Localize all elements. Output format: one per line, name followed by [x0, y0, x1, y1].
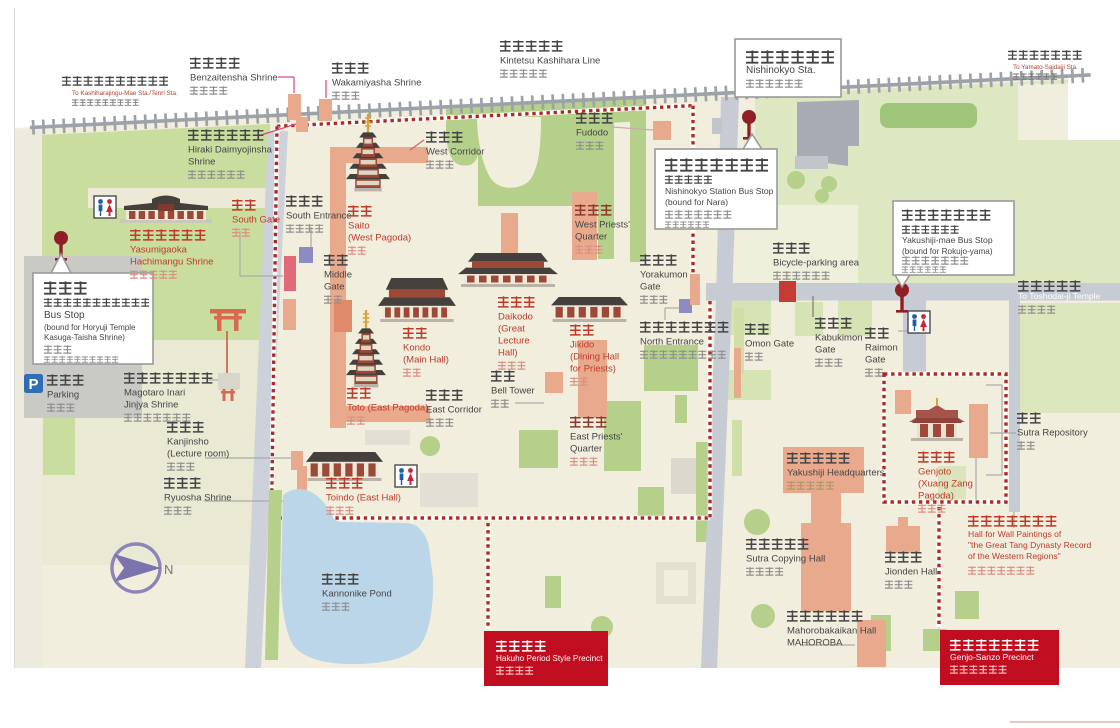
svg-text:Toto (East Pagoda): Toto (East Pagoda)	[347, 403, 428, 414]
svg-text:Magotaro Inari: Magotaro Inari	[124, 388, 185, 399]
svg-text:Kabukimon: Kabukimon	[815, 333, 863, 344]
svg-text:Quarter: Quarter	[570, 444, 602, 455]
svg-text:Hachimangu Shrine: Hachimangu Shrine	[130, 257, 213, 268]
svg-text:N: N	[164, 562, 173, 577]
svg-text:East Corridor: East Corridor	[426, 405, 482, 416]
svg-text:Daikodo: Daikodo	[498, 312, 533, 323]
svg-text:Hall for Wall Paintings of: Hall for Wall Paintings of	[968, 529, 1062, 539]
svg-text:Kanjinsho: Kanjinsho	[167, 437, 209, 448]
svg-text:(Main Hall): (Main Hall)	[403, 355, 449, 366]
svg-text:Wakamiyasha Shrine: Wakamiyasha Shrine	[332, 78, 421, 89]
svg-text:Jionden Hall: Jionden Hall	[885, 567, 937, 578]
svg-text:West Corridor: West Corridor	[426, 147, 484, 158]
svg-text:Toindo (East Hall): Toindo (East Hall)	[326, 493, 401, 504]
svg-text:Yakushiji Headquarters: Yakushiji Headquarters	[787, 468, 885, 479]
svg-text:Jikido: Jikido	[570, 340, 594, 351]
svg-text:Gate: Gate	[640, 282, 661, 293]
svg-text:of the Western Regions": of the Western Regions"	[968, 551, 1061, 561]
svg-text:Middle: Middle	[324, 270, 352, 281]
svg-text:(bound for Rokujo-yama): (bound for Rokujo-yama)	[902, 247, 993, 256]
svg-text:(Lecture room): (Lecture room)	[167, 449, 229, 460]
svg-text:Kasuga-Taisha Shrine): Kasuga-Taisha Shrine)	[44, 333, 125, 342]
svg-text:MAHOROBA: MAHOROBA	[787, 638, 843, 649]
svg-text:(Great: (Great	[498, 324, 525, 335]
svg-text:Nishinokyo Sta.: Nishinokyo Sta.	[746, 65, 815, 76]
svg-text:(bound for Horyuji Temple: (bound for Horyuji Temple	[44, 323, 136, 332]
svg-text:Saito: Saito	[348, 221, 370, 232]
svg-text:Yasumigaoka: Yasumigaoka	[130, 245, 188, 256]
svg-text:Bell Tower: Bell Tower	[491, 386, 535, 397]
svg-text:(Dining Hall: (Dining Hall	[570, 352, 619, 363]
svg-text:Gate: Gate	[324, 282, 345, 293]
svg-text:(Xuang Zang: (Xuang Zang	[918, 479, 973, 490]
svg-text:West Priests': West Priests'	[575, 220, 630, 231]
svg-text:Kondo: Kondo	[403, 343, 430, 354]
svg-text:To Kashiharajingu-Mae Sta./Ten: To Kashiharajingu-Mae Sta./Tenri Sta.	[72, 90, 178, 97]
svg-text:Fudodo: Fudodo	[576, 128, 608, 139]
svg-text:Hall): Hall)	[498, 348, 518, 359]
svg-text:Nishinokyo Station Bus Stop: Nishinokyo Station Bus Stop	[665, 186, 774, 196]
svg-text:Benzaitensha Shrine: Benzaitensha Shrine	[190, 73, 278, 84]
svg-text:South Gate: South Gate	[232, 215, 280, 226]
svg-text:Shrine: Shrine	[188, 157, 215, 168]
svg-text:Mahorobakaikan Hall: Mahorobakaikan Hall	[787, 626, 876, 637]
svg-text:Bus Stop: Bus Stop	[44, 310, 85, 321]
svg-text:Bicycle-parking area: Bicycle-parking area	[773, 258, 860, 269]
svg-text:for Priests): for Priests)	[570, 364, 616, 375]
svg-text:North Entrance: North Entrance	[640, 337, 704, 348]
svg-text:To Yamato-Saidaiji Sta.: To Yamato-Saidaiji Sta.	[1013, 64, 1078, 71]
svg-text:Kintetsu Kashihara Line: Kintetsu Kashihara Line	[500, 56, 600, 67]
svg-text:Parking: Parking	[47, 390, 79, 401]
svg-text:Ryuosha Shrine: Ryuosha Shrine	[164, 493, 232, 504]
svg-text:Omon Gate: Omon Gate	[745, 339, 794, 350]
svg-text:Gate: Gate	[865, 355, 886, 366]
svg-text:"the Great Tang Dynasty Record: "the Great Tang Dynasty Record	[968, 540, 1091, 550]
svg-text:Raimon: Raimon	[865, 343, 898, 354]
svg-text:Hakuho Period Style Precinct: Hakuho Period Style Precinct	[496, 654, 603, 663]
svg-text:To Toshodai-ji Temple: To Toshodai-ji Temple	[1018, 291, 1101, 301]
svg-text:(West Pagoda): (West Pagoda)	[348, 233, 411, 244]
svg-text:Sutra Copying Hall: Sutra Copying Hall	[746, 554, 825, 565]
svg-text:Quarter: Quarter	[575, 232, 607, 243]
svg-text:South Entrance: South Entrance	[286, 211, 352, 222]
svg-text:Yakushiji-mae Bus Stop: Yakushiji-mae Bus Stop	[902, 235, 993, 245]
svg-text:Jinjya Shrine: Jinjya Shrine	[124, 400, 178, 411]
svg-text:Lecture: Lecture	[498, 336, 530, 347]
svg-text:East Priests': East Priests'	[570, 432, 623, 443]
svg-text:P: P	[28, 376, 38, 393]
svg-text:Genjoto: Genjoto	[918, 467, 951, 478]
svg-text:Gate: Gate	[815, 345, 836, 356]
svg-text:(bound for Nara): (bound for Nara)	[665, 197, 728, 207]
svg-text:Pagoda): Pagoda)	[918, 491, 954, 502]
svg-text:Hiraki Daimyojinsha: Hiraki Daimyojinsha	[188, 145, 273, 156]
svg-text:Kannonike Pond: Kannonike Pond	[322, 589, 392, 600]
svg-text:Sutra Repository: Sutra Repository	[1017, 428, 1088, 439]
svg-text:Yorakumon: Yorakumon	[640, 270, 688, 281]
svg-text:Genjo-Sanzo Precinct: Genjo-Sanzo Precinct	[950, 652, 1034, 662]
